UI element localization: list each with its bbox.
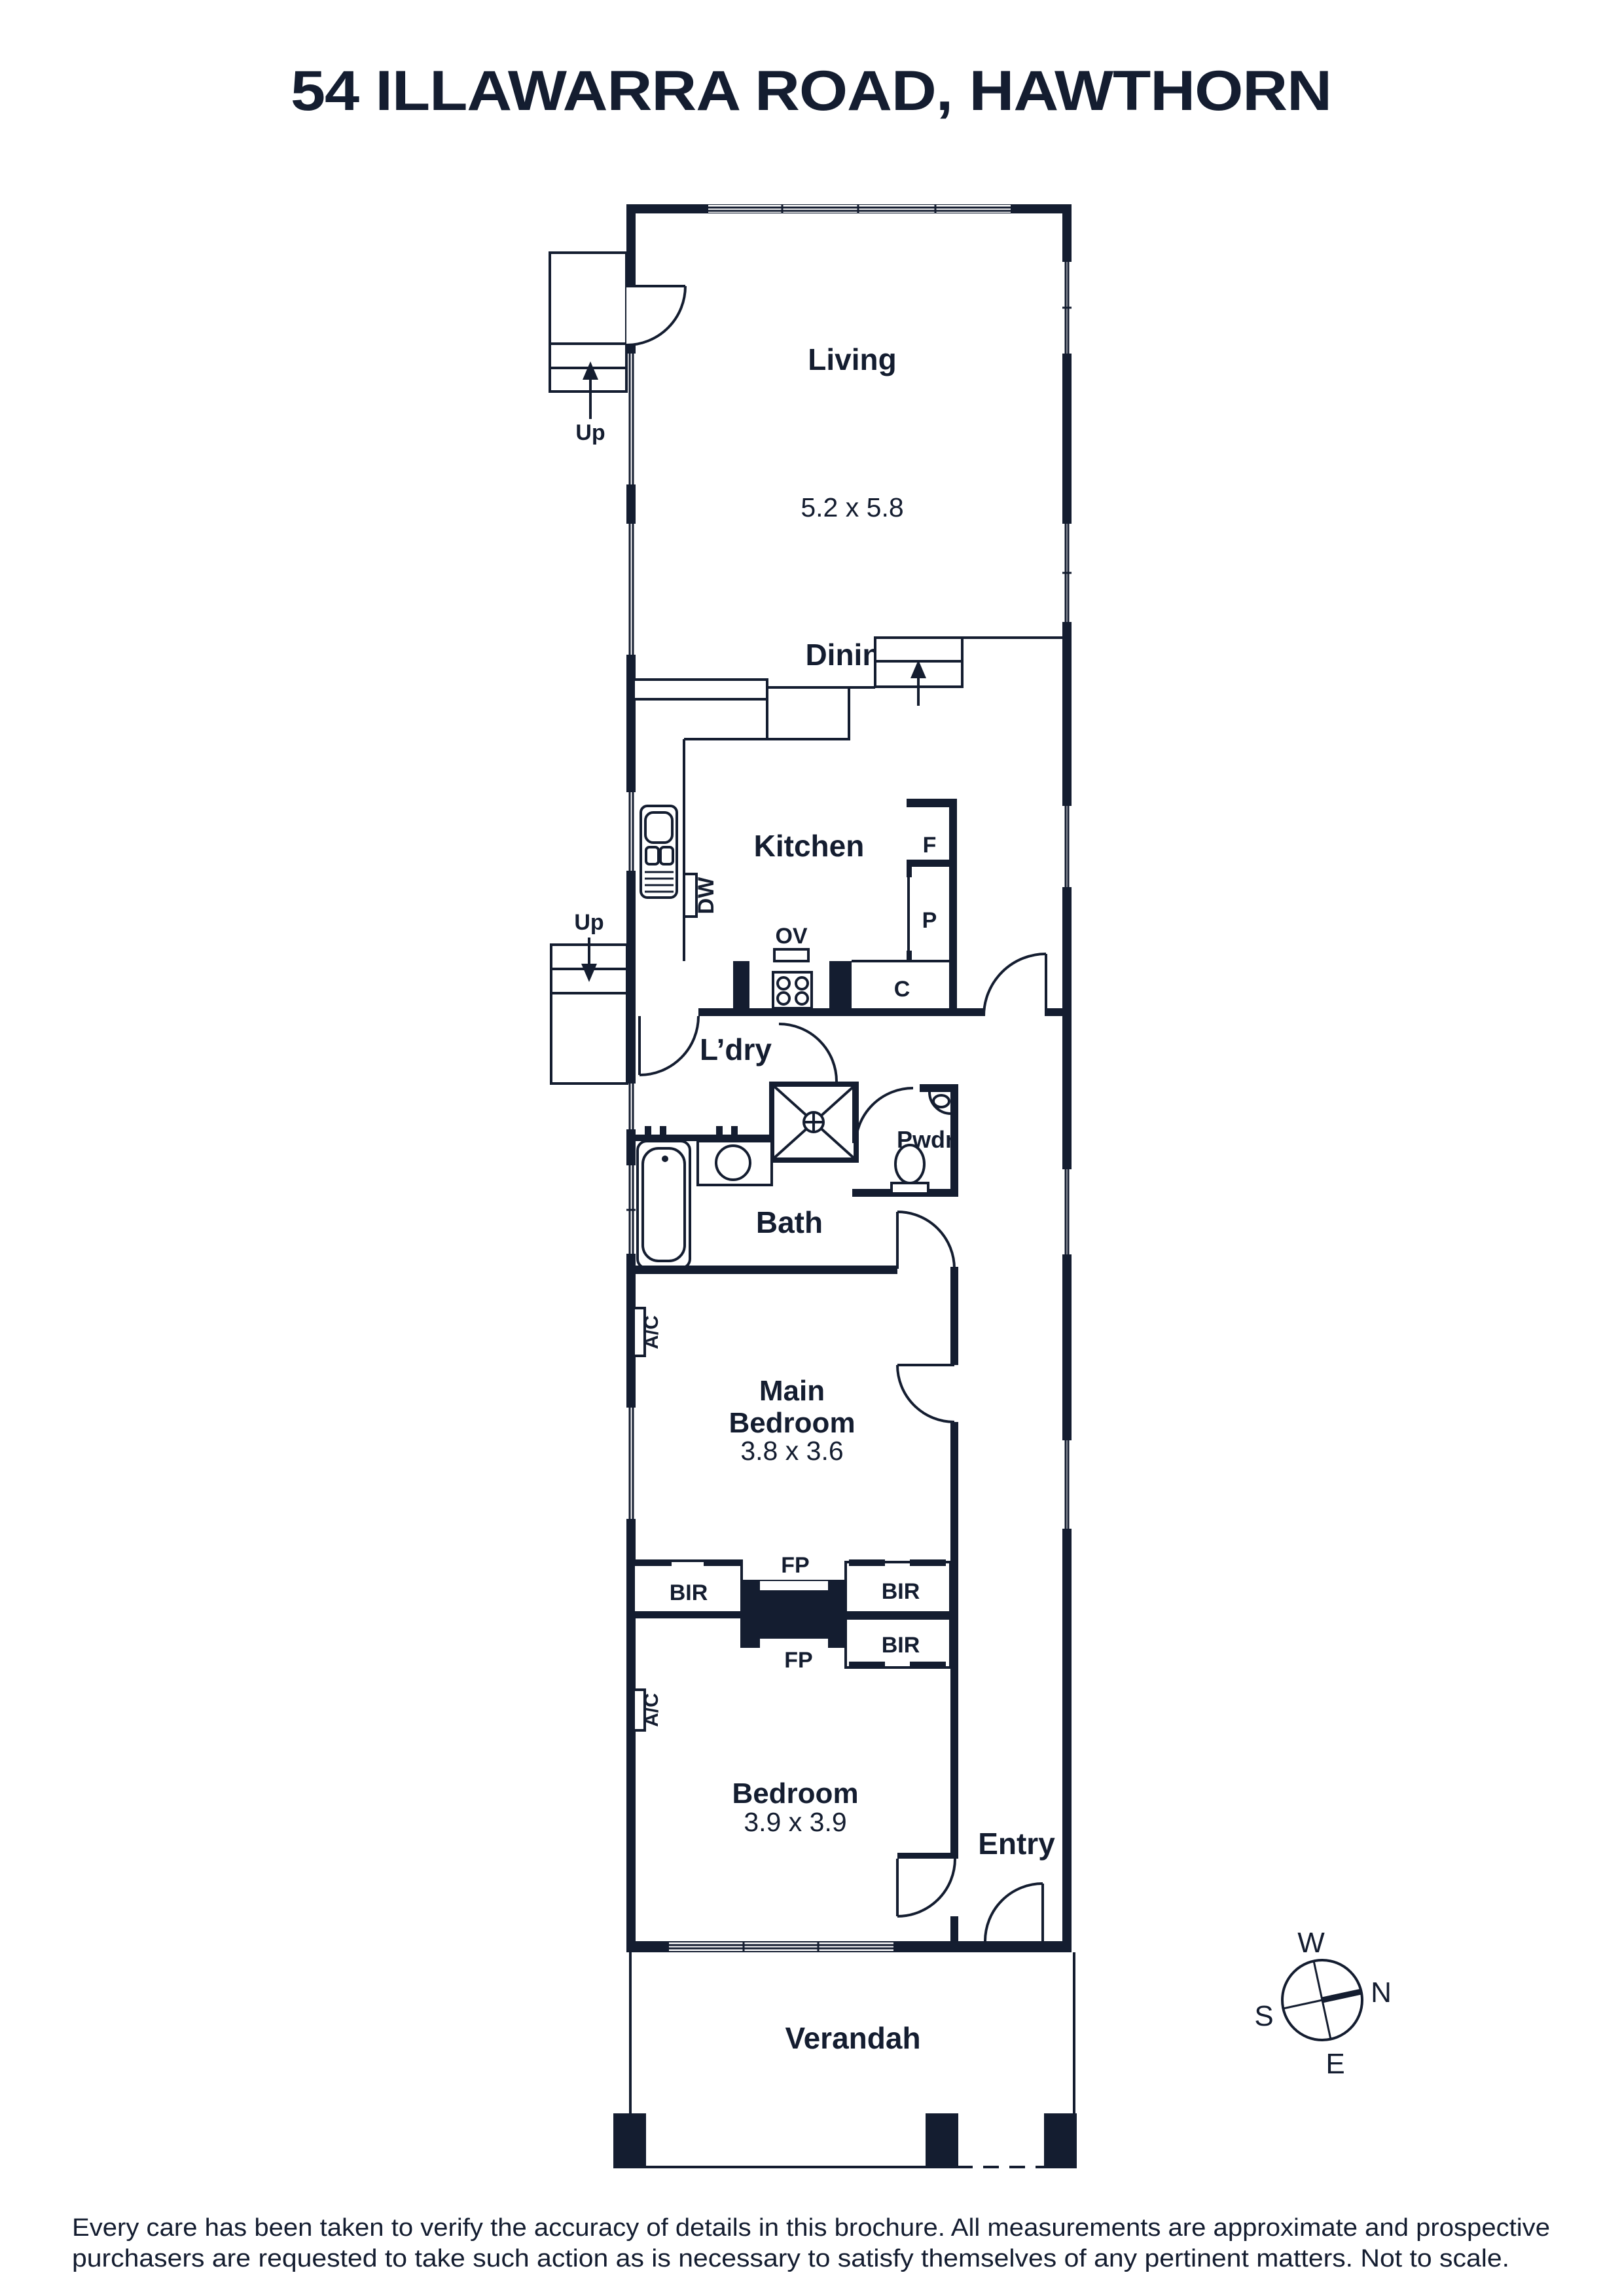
svg-text:A/C: A/C — [641, 1693, 662, 1727]
built-in-robe-3: BIR — [846, 1618, 950, 1668]
oven-label: OV — [775, 924, 807, 949]
living-door — [626, 286, 685, 345]
bathtub-icon — [638, 1141, 690, 1268]
floor-plan: 54 ILLAWARRA ROAD, HAWTHORN — [0, 0, 1622, 2296]
verandah-post-2 — [926, 2113, 958, 2168]
window-left-main-bedroom — [626, 1408, 636, 1519]
lower-porch: Up — [551, 910, 627, 1084]
built-in-robe-2: BIR — [846, 1559, 950, 1613]
living-dining-labels: Living 5.2 x 5.8 Dining — [801, 342, 903, 672]
air-conditioner-1: A/C — [634, 1308, 662, 1356]
compass-west-line — [1314, 1961, 1322, 2000]
room-dims-main: 3.8 x 3.6 — [740, 1436, 843, 1466]
verandah-post-1 — [613, 2113, 646, 2168]
main-bedroom-door — [897, 1365, 954, 1422]
entry-door — [985, 1884, 1043, 1941]
main-bedroom: A/C Main Bedroom 3.8 x 3.6 — [634, 1308, 856, 1466]
room-label-main-2: Bedroom — [729, 1407, 855, 1439]
room-label-entry: Entry — [978, 1827, 1055, 1861]
hall-kitchen-door — [984, 954, 1046, 1016]
compass-south-label: S — [1254, 2000, 1273, 2032]
pantry-label: P — [922, 908, 937, 933]
bath-door-arc — [779, 1024, 837, 1082]
compass-west-label: W — [1297, 1927, 1325, 1959]
page-title: 54 ILLAWARRA ROAD, HAWTHORN — [291, 60, 1331, 122]
svg-text:BIR: BIR — [882, 1633, 920, 1658]
vanity-icon — [698, 1141, 772, 1185]
laundry-door — [640, 1016, 698, 1075]
verandah: Verandah — [613, 1952, 1077, 2168]
built-in-robe-1: BIR — [634, 1559, 742, 1613]
verandah-post-3 — [1044, 2113, 1077, 2168]
pantry-block: F P C — [852, 799, 957, 1016]
oven-icon — [774, 949, 808, 961]
fireplace-label-2: FP — [784, 1648, 812, 1673]
window-right-kitchen — [1062, 806, 1072, 887]
air-conditioner-2: A/C — [634, 1690, 662, 1730]
compass-east-label: E — [1325, 2048, 1344, 2080]
bedroom-door — [897, 1859, 955, 1916]
fireplace-icon: FP FP — [740, 1553, 846, 1673]
window-left-living-1 — [626, 354, 636, 484]
robes-fireplace-row: BIR FP FP BIR BIR — [634, 1553, 950, 1673]
windows — [626, 205, 1072, 1951]
entry: Entry — [978, 1827, 1055, 1941]
fireplace-label-1: FP — [781, 1553, 809, 1578]
window-south — [669, 1942, 893, 1951]
cupboard-label: C — [894, 977, 910, 1002]
window-right-living-1 — [1062, 262, 1072, 354]
compass-south-line — [1283, 2000, 1322, 2009]
bedroom: A/C Bedroom 3.9 x 3.9 — [634, 1690, 955, 1916]
room-dims-living: 5.2 x 5.8 — [801, 492, 903, 522]
bath-bedroom-door — [897, 1212, 954, 1269]
svg-text:A/C: A/C — [641, 1315, 662, 1349]
window-right-hall-2 — [1062, 1440, 1072, 1529]
room-label-kitchen: Kitchen — [754, 829, 865, 863]
room-dims-bedroom: 3.9 x 3.9 — [744, 1807, 846, 1837]
window-left-living-2 — [626, 524, 636, 655]
stairs-up-label-2: Up — [574, 910, 604, 935]
window-right-dining — [1062, 524, 1072, 622]
fridge-label: F — [923, 833, 937, 858]
kitchen-bench-1 — [634, 680, 767, 699]
compass-north-label: N — [1371, 1977, 1392, 2009]
room-label-living: Living — [808, 342, 896, 376]
shower-icon — [772, 1084, 856, 1160]
window-top — [708, 205, 1011, 213]
stairs-up-label-1: Up — [575, 420, 605, 445]
room-label-bath: Bath — [756, 1205, 823, 1239]
room-label-laundry: L’dry — [700, 1032, 772, 1066]
powder-room: Pwdr — [852, 1084, 958, 1197]
kitchen: DW OV Kitchen F P C — [634, 680, 1062, 1075]
bath-top-wall — [634, 1126, 772, 1141]
disclaimer-line-1: Every care has been taken to verify the … — [72, 2214, 1550, 2242]
compass-north-needle — [1322, 1992, 1361, 2000]
room-label-bedroom: Bedroom — [732, 1777, 858, 1810]
compass-east-line — [1322, 2000, 1331, 2039]
cooktop-icon — [773, 972, 812, 1008]
exterior-walls — [626, 204, 1072, 1952]
upper-porch: Up — [550, 253, 626, 445]
room-label-powder: Pwdr — [897, 1126, 954, 1153]
disclaimer-line-2: purchasers are requested to take such ac… — [72, 2245, 1509, 2272]
disclaimer: Every care has been taken to verify the … — [72, 2214, 1550, 2272]
compass: W N S E — [1254, 1927, 1392, 2080]
svg-text:BIR: BIR — [670, 1580, 708, 1605]
corner-basin-icon — [929, 1092, 950, 1114]
internal-stairs — [875, 638, 1062, 706]
room-label-verandah: Verandah — [785, 2021, 920, 2055]
kitchen-bench-2 — [767, 687, 849, 739]
sink-icon — [641, 806, 677, 898]
window-left-laundry — [626, 1084, 636, 1129]
window-left-kitchen — [626, 792, 636, 871]
room-label-main-1: Main — [759, 1375, 825, 1407]
window-right-hall-1 — [1062, 1169, 1072, 1254]
window-left-bath — [626, 1165, 636, 1254]
dishwasher-label: DW — [694, 877, 719, 915]
svg-text:BIR: BIR — [882, 1579, 920, 1604]
